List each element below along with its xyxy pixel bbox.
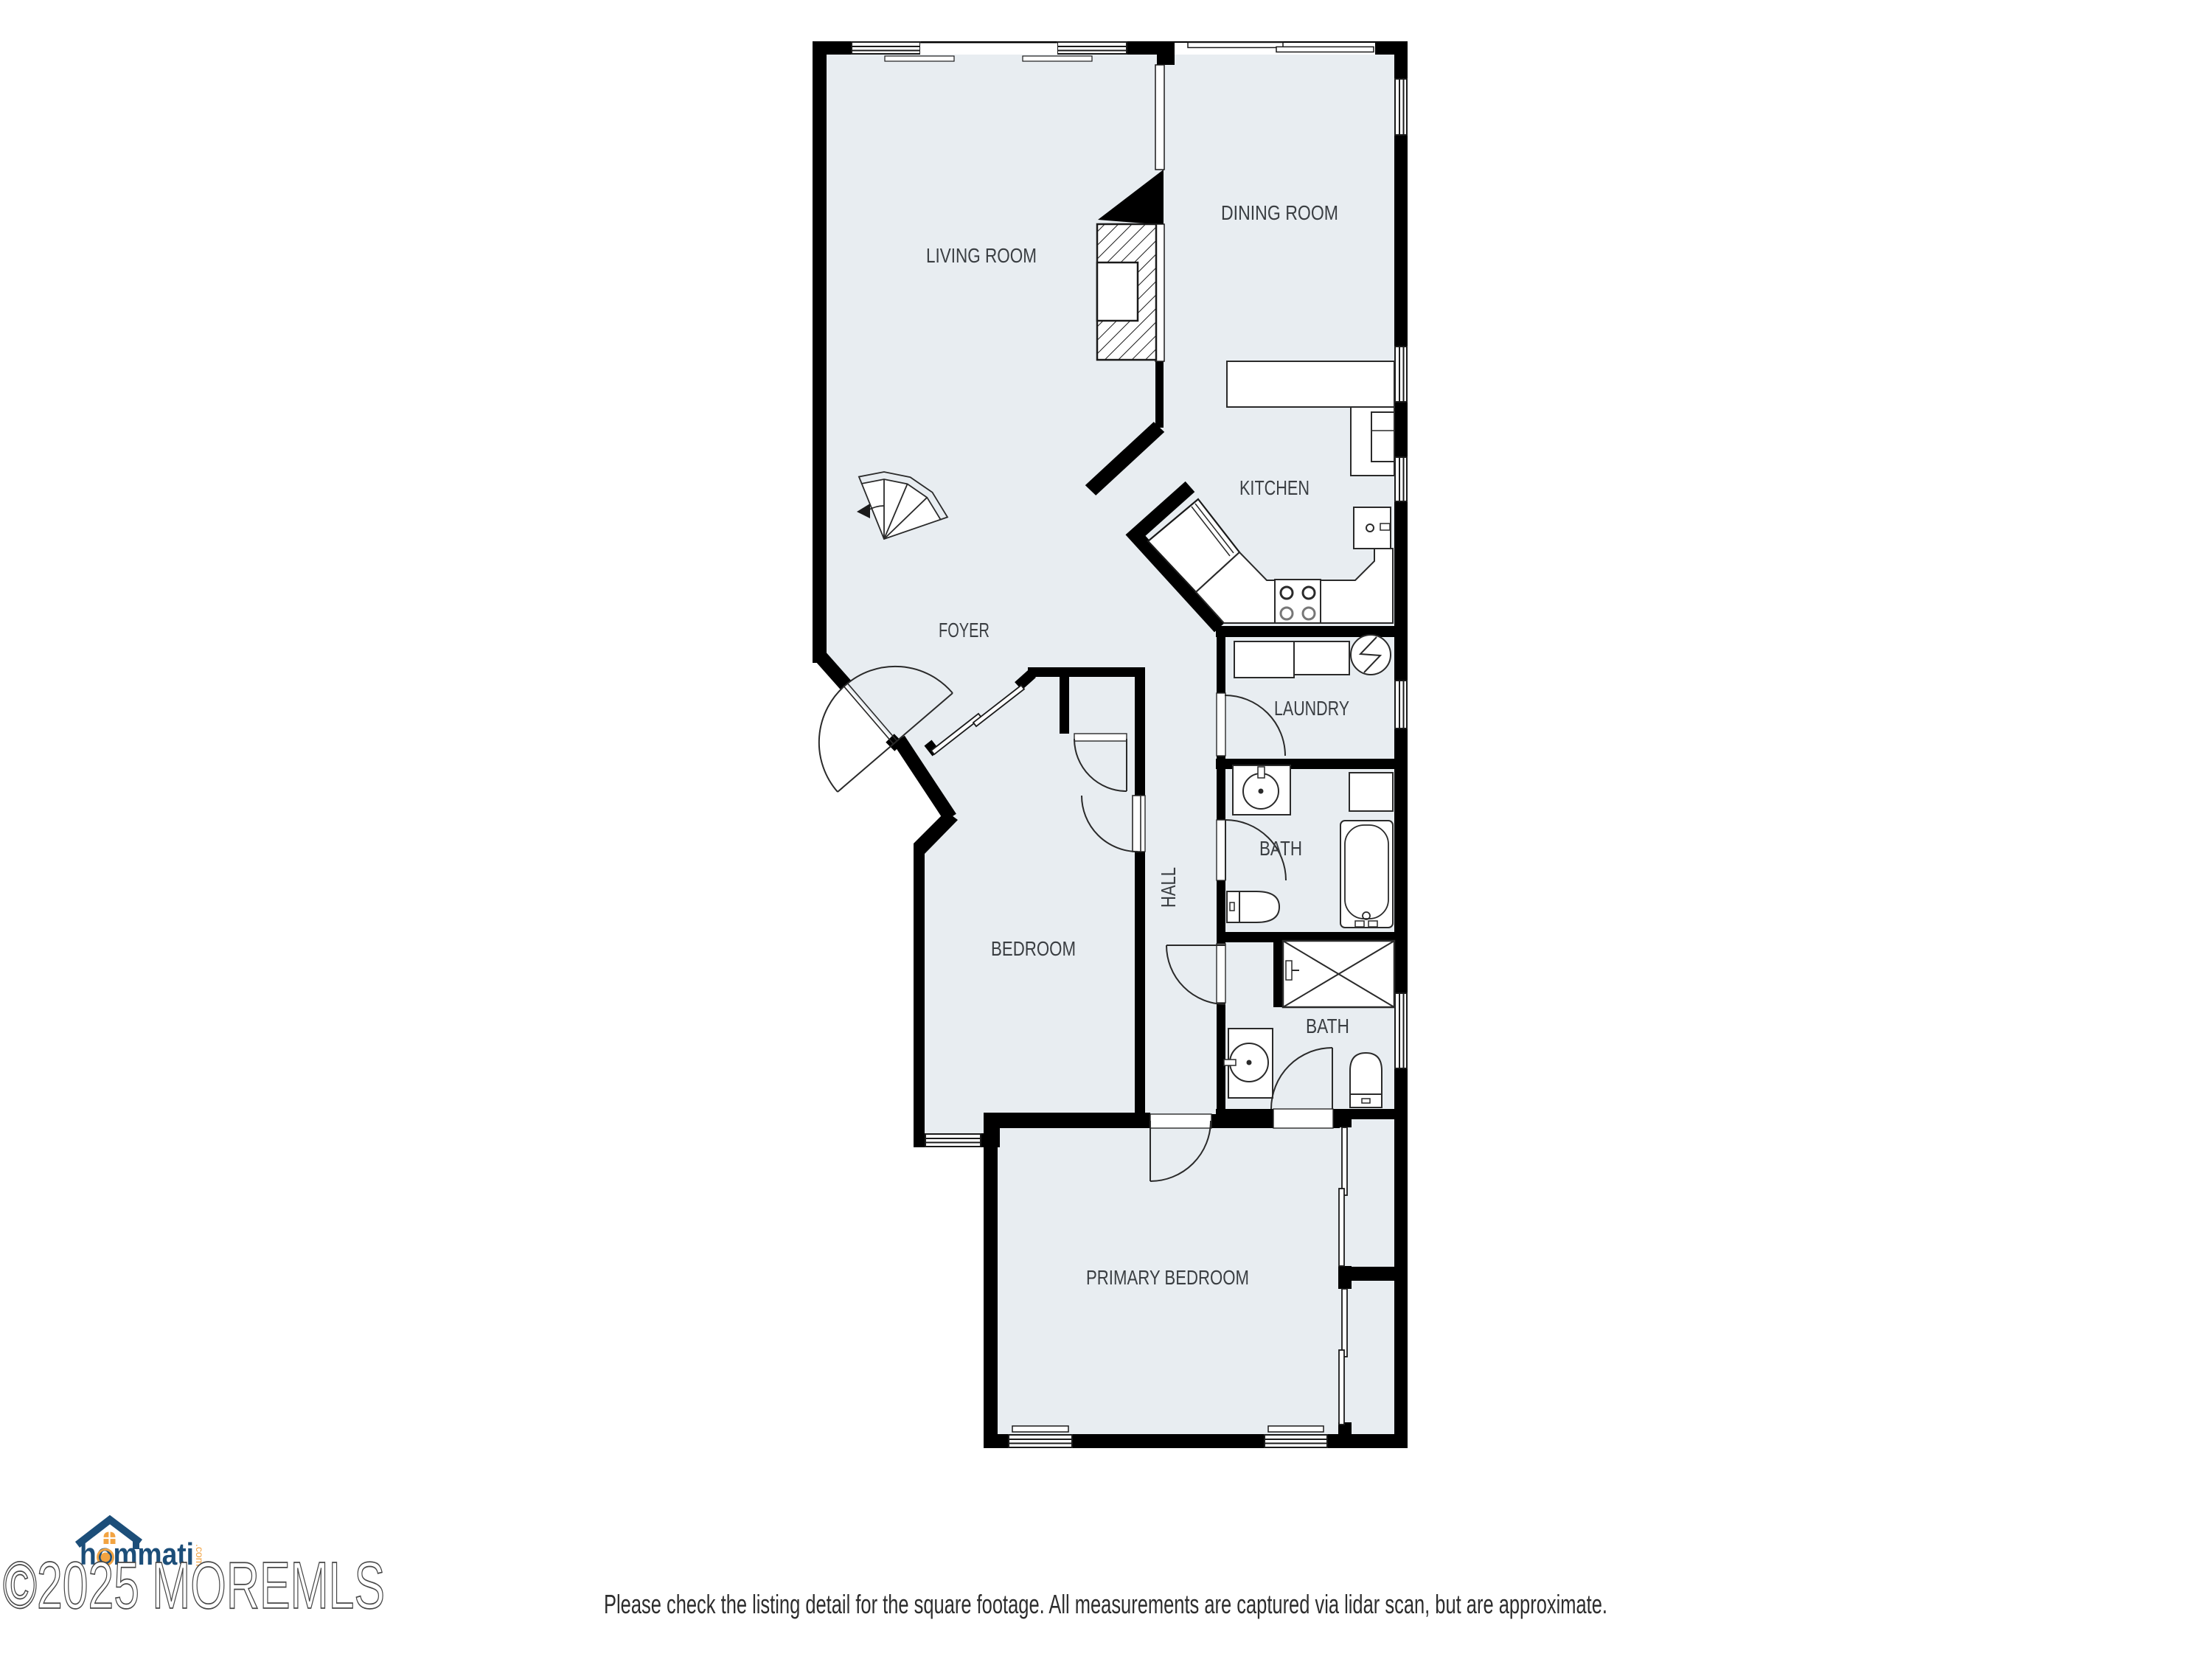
svg-text:FOYER: FOYER	[939, 619, 990, 641]
svg-text:KITCHEN: KITCHEN	[1239, 476, 1310, 499]
svg-text:LAUNDRY: LAUNDRY	[1274, 697, 1349, 720]
svg-text:BATH: BATH	[1259, 837, 1302, 860]
svg-text:BEDROOM: BEDROOM	[991, 937, 1076, 960]
svg-text:DINING ROOM: DINING ROOM	[1221, 201, 1338, 224]
svg-text:PRIMARY BEDROOM: PRIMARY BEDROOM	[1086, 1266, 1249, 1289]
svg-text:HALL: HALL	[1157, 867, 1180, 908]
svg-text:LIVING ROOM: LIVING ROOM	[926, 244, 1037, 267]
svg-text:Please check the listing detai: Please check the listing detail for the …	[604, 1589, 1607, 1619]
svg-text:BATH: BATH	[1306, 1015, 1349, 1037]
svg-text:©2025 MOREMLS: ©2025 MOREMLS	[3, 1549, 385, 1623]
